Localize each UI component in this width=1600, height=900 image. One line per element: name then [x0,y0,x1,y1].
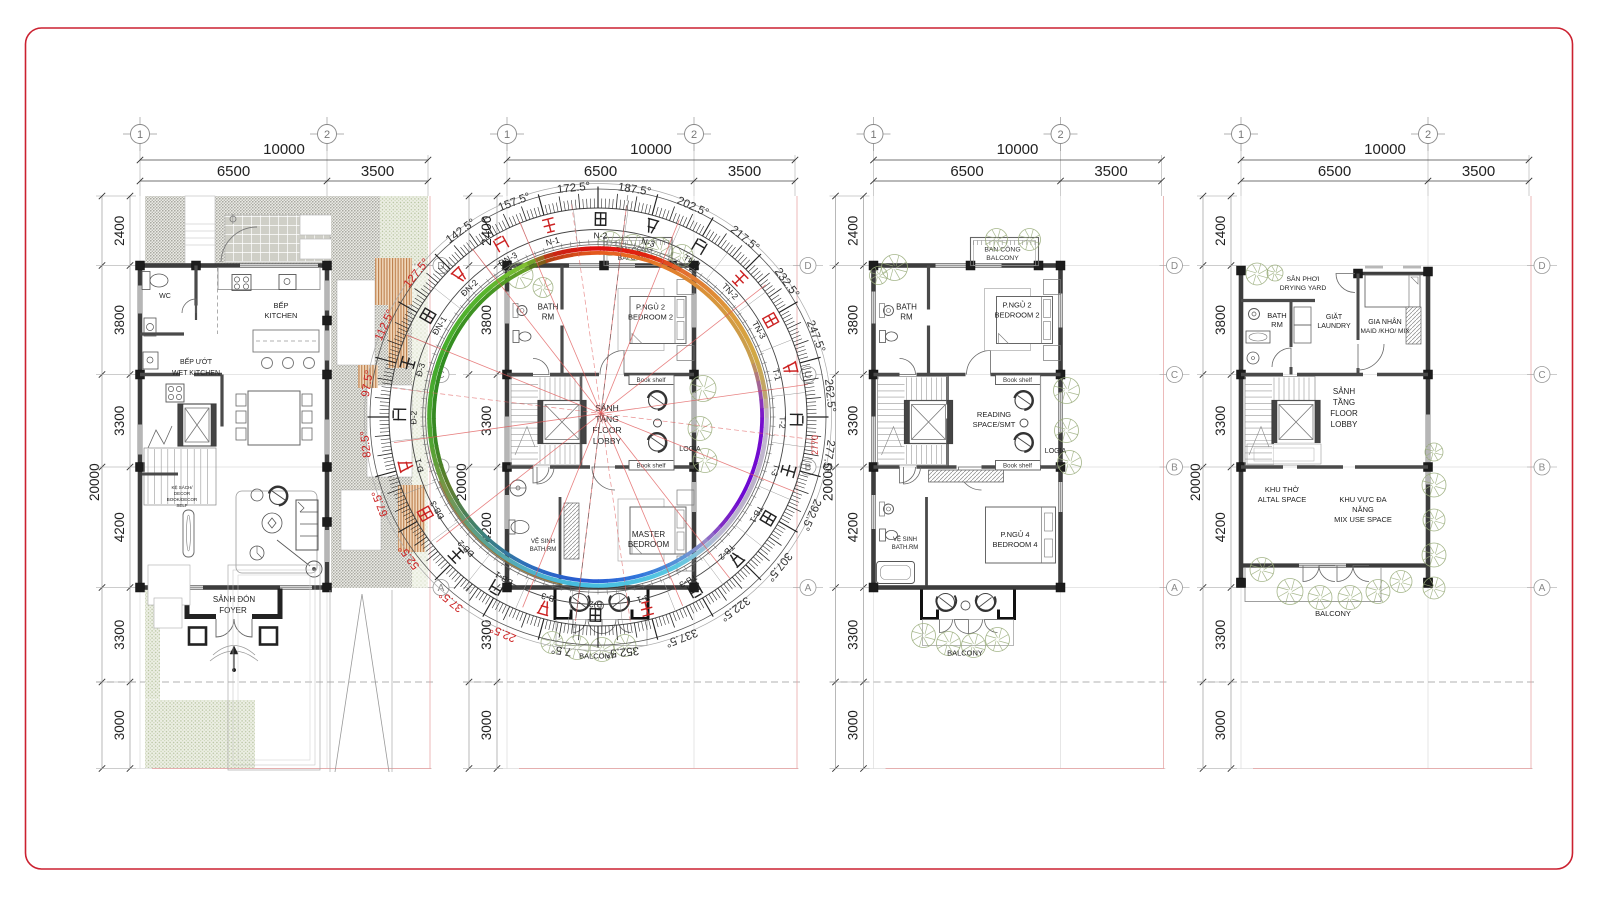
svg-text:BEDROOM 2: BEDROOM 2 [628,313,673,322]
svg-text:3000: 3000 [479,710,494,740]
svg-text:N-2: N-2 [594,230,608,240]
svg-text:SẢNH: SẢNH [1333,387,1355,396]
svg-text:SPACE/SMT: SPACE/SMT [973,420,1016,429]
svg-text:3500: 3500 [361,163,394,180]
svg-text:3300: 3300 [846,620,861,650]
svg-text:6500: 6500 [217,163,250,180]
svg-text:4200: 4200 [1213,512,1228,542]
svg-text:20000: 20000 [1188,463,1203,501]
svg-text:3300: 3300 [112,620,127,650]
svg-text:ALTAL SPACE: ALTAL SPACE [1258,495,1307,504]
svg-text:D: D [804,261,811,272]
svg-text:3300: 3300 [479,406,494,436]
svg-text:10000: 10000 [1364,141,1406,158]
svg-text:WC: WC [159,293,171,300]
svg-text:1: 1 [1238,129,1244,141]
svg-text:Book shelf: Book shelf [637,377,666,384]
svg-text:2400: 2400 [479,216,494,246]
svg-text:3000: 3000 [846,710,861,740]
svg-text:LOBBY: LOBBY [1331,420,1358,429]
svg-text:BOOK/DECOR: BOOK/DECOR [167,497,198,502]
svg-text:GIA NHÂN: GIA NHÂN [1368,317,1401,326]
svg-text:VỆ SINH: VỆ SINH [893,535,917,543]
svg-text:VỆ SINH: VỆ SINH [531,537,555,545]
svg-text:3500: 3500 [1094,163,1127,180]
svg-text:WET KITCHEN: WET KITCHEN [172,370,220,377]
svg-text:DECOR: DECOR [174,491,191,496]
svg-text:20000: 20000 [87,463,102,501]
svg-text:1: 1 [870,129,876,141]
svg-text:KỆ SÁCH/: KỆ SÁCH/ [171,483,193,490]
svg-text:10000: 10000 [263,141,305,158]
svg-text:RM: RM [1271,320,1283,329]
svg-text:10000: 10000 [630,141,672,158]
svg-text:D: D [1171,261,1178,272]
svg-text:3300: 3300 [112,406,127,436]
svg-text:B: B [805,463,812,474]
svg-text:3300: 3300 [1213,620,1228,650]
svg-text:FLOOR: FLOOR [592,425,621,435]
svg-text:C: C [1538,370,1545,381]
svg-text:T-2: T-2 [777,416,787,429]
svg-text:Book shelf: Book shelf [1003,463,1032,470]
svg-text:LOGIA: LOGIA [1045,448,1067,455]
svg-text:BATH: BATH [896,303,917,312]
svg-text:NĂNG: NĂNG [1352,505,1374,514]
svg-text:10000: 10000 [997,141,1039,158]
svg-text:KITCHEN: KITCHEN [265,311,298,320]
svg-text:SELF: SELF [176,503,188,508]
svg-text:SÂN PHƠI: SÂN PHƠI [1286,274,1319,283]
svg-text:6500: 6500 [584,163,617,180]
svg-text:DRYING YARD: DRYING YARD [1280,285,1327,292]
svg-text:P.NGỦ 2: P.NGỦ 2 [636,303,665,312]
svg-text:2770: 2770 [810,435,820,455]
svg-text:3000: 3000 [1213,710,1228,740]
svg-text:3800: 3800 [1213,305,1228,335]
svg-text:2: 2 [1057,129,1063,141]
svg-text:MAID /KHO/ MIX: MAID /KHO/ MIX [1360,328,1410,335]
svg-text:BEDROOM 4: BEDROOM 4 [992,540,1037,549]
svg-text:P.NGỦ 4: P.NGỦ 4 [1000,530,1029,539]
svg-text:6500: 6500 [1318,163,1351,180]
svg-text:1: 1 [504,129,510,141]
svg-text:3500: 3500 [728,163,761,180]
svg-text:BALCONY: BALCONY [1315,609,1351,618]
svg-text:3800: 3800 [479,305,494,335]
svg-text:Đ-2: Đ-2 [408,410,418,424]
svg-text:BATH: BATH [1267,311,1286,320]
svg-text:2400: 2400 [112,216,127,246]
svg-text:B: B [1171,463,1178,474]
svg-text:3800: 3800 [846,305,861,335]
svg-text:BEDROOM 2: BEDROOM 2 [994,311,1039,320]
svg-text:2400: 2400 [846,216,861,246]
svg-text:MIX USE SPACE: MIX USE SPACE [1334,515,1392,524]
svg-text:FLOOR: FLOOR [1330,409,1358,418]
svg-text:4200: 4200 [846,512,861,542]
svg-text:Book shelf: Book shelf [637,463,666,470]
svg-text:A: A [805,583,812,594]
svg-text:6500: 6500 [950,163,983,180]
svg-text:Book shelf: Book shelf [1003,377,1032,384]
svg-text:BATH.RM: BATH.RM [530,547,557,553]
svg-text:3000: 3000 [112,710,127,740]
svg-text:2400: 2400 [1213,216,1228,246]
svg-text:KHU THỜ: KHU THỜ [1265,485,1300,494]
svg-text:C: C [1171,370,1178,381]
svg-text:3300: 3300 [1213,406,1228,436]
svg-text:RM: RM [900,313,913,322]
svg-text:3300: 3300 [846,406,861,436]
svg-text:BALCONY: BALCONY [986,255,1019,262]
svg-text:KHU VỰC ĐA: KHU VỰC ĐA [1339,495,1386,504]
svg-text:B-2: B-2 [589,599,603,609]
svg-text:RM: RM [542,313,555,322]
svg-text:TẦNG: TẦNG [1333,397,1355,407]
svg-text:3500: 3500 [1462,163,1495,180]
svg-text:BALCONY: BALCONY [947,649,983,658]
svg-text:A: A [1539,583,1546,594]
svg-text:LAUNDRY: LAUNDRY [1317,323,1351,330]
svg-text:SẢNH ĐÓN: SẢNH ĐÓN [213,595,255,604]
svg-text:3800: 3800 [112,305,127,335]
svg-text:A: A [1171,583,1178,594]
svg-text:READING: READING [977,410,1011,419]
svg-text:B: B [1539,463,1546,474]
svg-text:BẾP: BẾP [273,300,288,310]
svg-text:2: 2 [324,129,330,141]
svg-text:P.NGỦ 2: P.NGỦ 2 [1002,301,1031,310]
svg-text:GIẶT: GIẶT [1326,312,1343,321]
svg-text:2: 2 [1425,129,1431,141]
svg-text:D: D [1538,261,1545,272]
svg-text:1: 1 [137,129,143,141]
svg-text:BEDROOM: BEDROOM [628,540,670,549]
svg-text:4200: 4200 [112,512,127,542]
svg-text:2: 2 [691,129,697,141]
svg-text:BATH.RM: BATH.RM [892,545,919,551]
svg-text:MASTER: MASTER [632,530,666,539]
svg-text:20000: 20000 [454,463,469,501]
